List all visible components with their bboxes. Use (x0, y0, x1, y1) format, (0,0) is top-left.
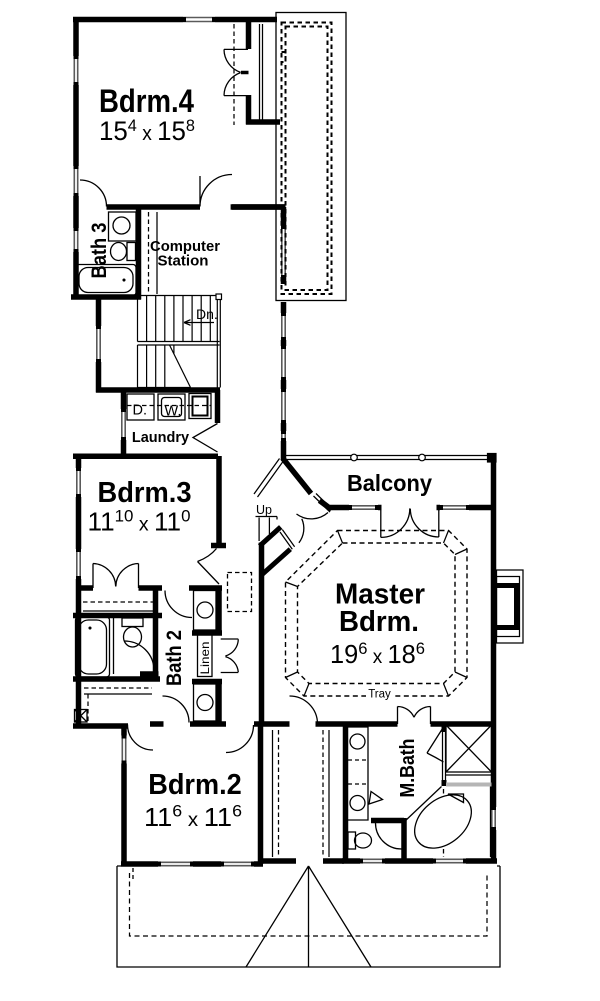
svg-text:Bdrm.4: Bdrm.4 (99, 83, 194, 119)
svg-text:M.Bath: M.Bath (397, 739, 419, 798)
svg-text:Bath 2: Bath 2 (163, 630, 186, 686)
svg-text:196 x 186: 196 x 186 (330, 639, 425, 669)
svg-text:1110 x 110: 1110 x 110 (88, 508, 191, 537)
svg-text:D.: D. (133, 403, 148, 419)
svg-text:Balcony: Balcony (347, 470, 432, 496)
svg-text:154 x 158: 154 x 158 (99, 116, 195, 146)
svg-text:Bdrm.2: Bdrm.2 (148, 769, 242, 801)
svg-text:Bdrm.3: Bdrm.3 (98, 477, 192, 509)
svg-text:W.: W. (165, 404, 182, 420)
svg-text:Bath 3: Bath 3 (88, 223, 111, 279)
svg-text:Up: Up (256, 503, 272, 517)
svg-text:Tray: Tray (368, 689, 391, 701)
svg-text:Station: Station (158, 254, 209, 270)
svg-text:Laundry: Laundry (132, 430, 189, 446)
svg-text:Dn.: Dn. (196, 306, 218, 322)
svg-text:Linen: Linen (198, 642, 212, 675)
svg-text:Bdrm.: Bdrm. (339, 606, 419, 638)
svg-text:116 x 116: 116 x 116 (144, 802, 242, 833)
